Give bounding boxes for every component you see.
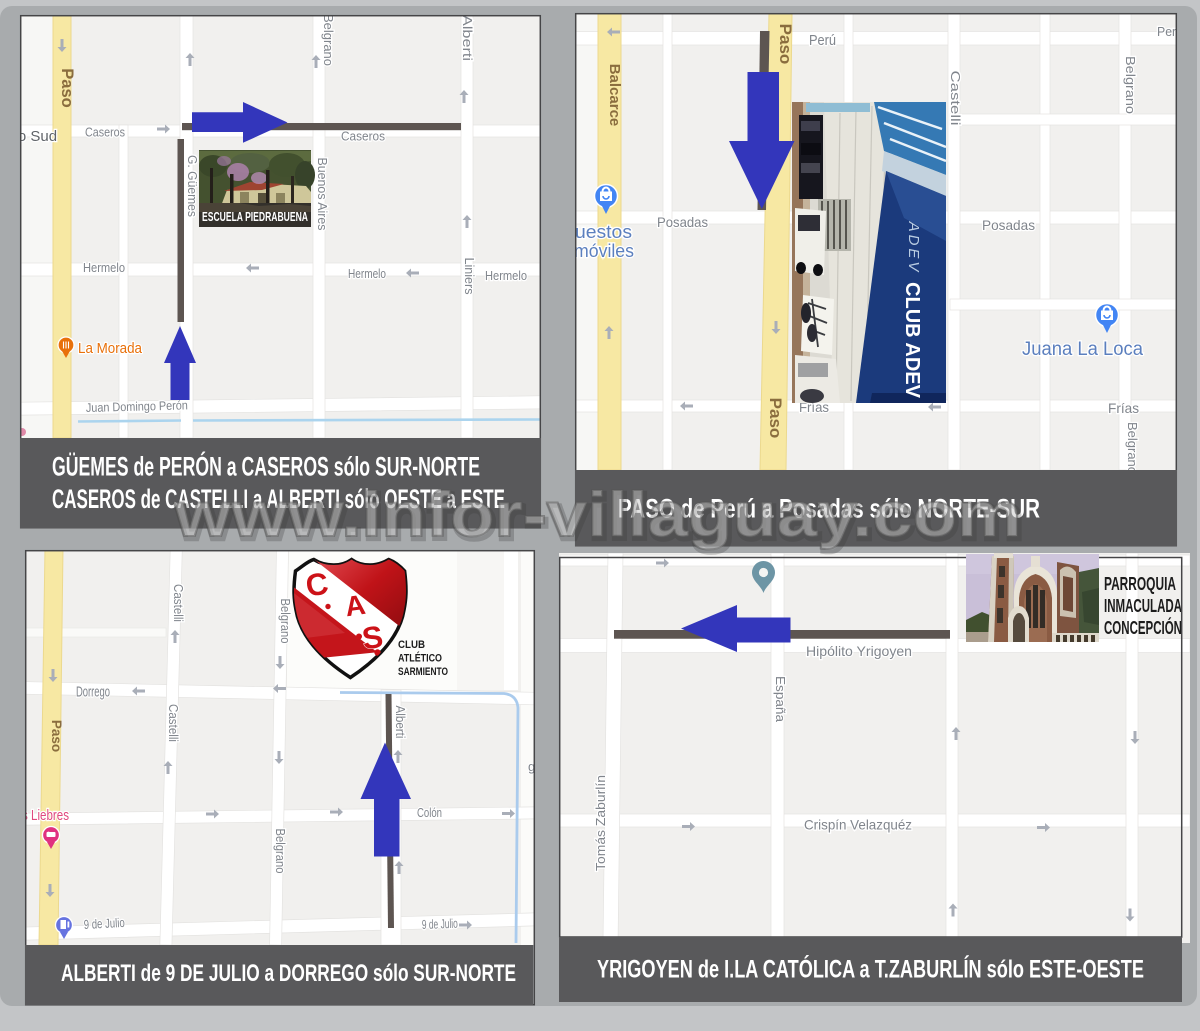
svg-text:Posadas: Posadas (657, 214, 708, 230)
svg-text:YRIGOYEN de I.LA CATÓLICA a T.: YRIGOYEN de I.LA CATÓLICA a T.ZABURLÍN s… (597, 954, 1144, 984)
svg-text:Buenos Aires: Buenos Aires (315, 158, 329, 231)
svg-text:Juana La Loca: Juana La Loca (1022, 339, 1143, 360)
svg-text:CONCEPCIÓN: CONCEPCIÓN (1104, 617, 1182, 638)
svg-text:Caseros: Caseros (341, 129, 385, 144)
svg-text:Castelli: Castelli (948, 71, 963, 126)
svg-text:CLUB: CLUB (398, 639, 425, 651)
svg-text:SARMIENTO: SARMIENTO (398, 666, 448, 678)
svg-text:www.infor-villaguay.com: www.infor-villaguay.com (173, 480, 1021, 550)
svg-text:uestos: uestos (575, 222, 632, 242)
svg-text:ALBERTI de 9 DE JULIO a DORREG: ALBERTI de 9 DE JULIO a DORREGO sólo SUR… (61, 960, 516, 987)
svg-text:Balcarce: Balcarce (606, 64, 623, 127)
svg-text:ATLÉTICO: ATLÉTICO (398, 652, 442, 665)
svg-text:Paso: Paso (776, 24, 795, 65)
svg-text:Juan Domingo Perón: Juan Domingo Perón (86, 398, 188, 415)
svg-text:móviles: móviles (574, 241, 634, 261)
svg-text:Castelli: Castelli (171, 584, 185, 622)
svg-text:Dorrego: Dorrego (76, 685, 110, 701)
svg-text:Alberti: Alberti (393, 706, 407, 739)
svg-text:Liniers: Liniers (462, 258, 476, 295)
svg-text:Belgrano: Belgrano (273, 829, 287, 874)
svg-text:Belgrano: Belgrano (278, 599, 292, 644)
svg-text:9 de Julio: 9 de Julio (422, 916, 459, 932)
svg-text:Crispín Velazquéz: Crispín Velazquéz (804, 817, 912, 833)
svg-text:CLUB ADEV: CLUB ADEV (901, 282, 923, 399)
svg-text:Frías: Frías (1108, 400, 1139, 416)
svg-text:Castelli: Castelli (166, 704, 180, 742)
svg-text:GÜEMES de PERÓN a CASEROS sól: GÜEMES de PERÓN a CASEROS sólo SUR-NORTE (52, 451, 480, 482)
svg-text:Hipólito Yrigoyen: Hipólito Yrigoyen (806, 643, 912, 659)
svg-text:ESCUELA PIEDRABUENA: ESCUELA PIEDRABUENA (202, 209, 308, 224)
svg-text:Paso: Paso (58, 68, 76, 107)
svg-text:Paso: Paso (49, 720, 64, 752)
svg-text:G. Güemes: G. Güemes (185, 155, 199, 217)
svg-text:Hermelo: Hermelo (485, 268, 527, 283)
svg-text:Caseros: Caseros (85, 125, 125, 140)
svg-text:Hermelo: Hermelo (83, 260, 125, 275)
svg-text:Belgrano: Belgrano (321, 14, 336, 66)
svg-text:s Liebres: s Liebres (22, 808, 69, 824)
svg-text:Posadas: Posadas (982, 217, 1035, 233)
svg-text:Paso: Paso (766, 398, 785, 439)
svg-text:Perú: Perú (809, 33, 836, 49)
svg-text:Belgrano: Belgrano (1123, 56, 1138, 114)
svg-text:La Morada: La Morada (78, 340, 143, 357)
svg-text:Colón: Colón (417, 805, 442, 820)
svg-text:España: España (773, 676, 788, 723)
svg-text:Alberti: Alberti (460, 15, 475, 61)
svg-text:Belgrano: Belgrano (1125, 422, 1140, 474)
svg-text:ADEV: ADEV (905, 221, 922, 275)
svg-text:A: A (343, 589, 367, 623)
svg-text:INMACULADA: INMACULADA (1104, 596, 1182, 616)
svg-text:PARROQUIA: PARROQUIA (1104, 574, 1176, 594)
svg-text:9 de Julio: 9 de Julio (83, 915, 125, 932)
svg-text:Hermelo: Hermelo (348, 266, 386, 281)
svg-text:Tomás Zaburlín: Tomás Zaburlín (593, 775, 608, 871)
